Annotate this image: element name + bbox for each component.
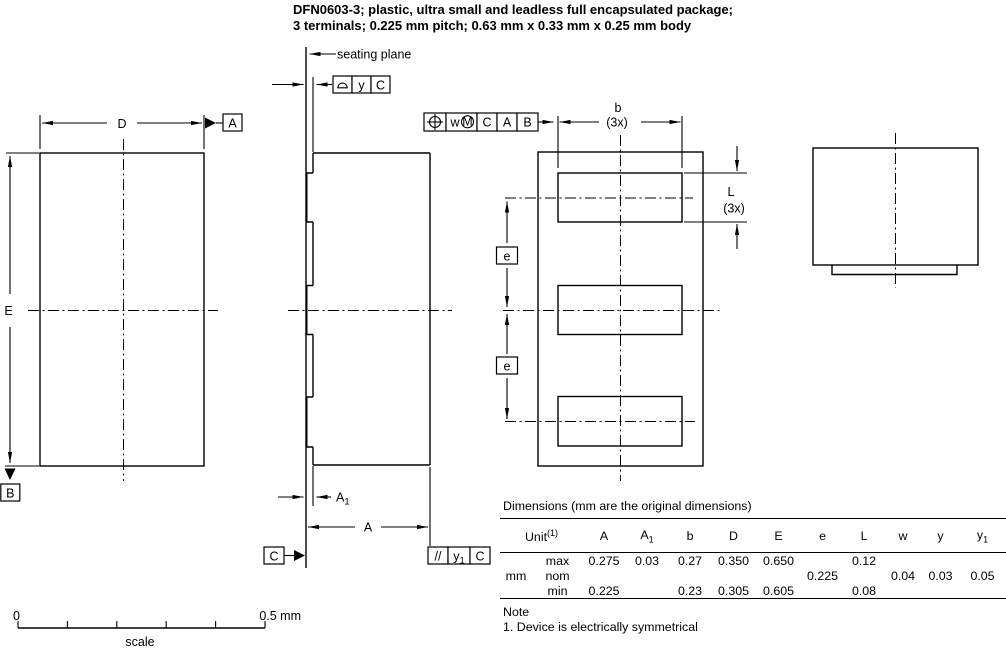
dim-label-d: D <box>117 117 126 131</box>
position-frame: w M C A B <box>424 113 554 131</box>
row-label: nom <box>532 568 583 583</box>
dim-label-l: L <box>728 185 735 199</box>
col-header-w: w <box>884 519 922 553</box>
dim-label-e-pitch-1: e <box>504 250 511 264</box>
position-datum-2: A <box>503 116 512 130</box>
col-header-L: L <box>844 519 884 553</box>
body-outline <box>813 148 978 265</box>
scale-zero-label: 0 <box>13 609 20 623</box>
datum-c-triangle <box>294 550 305 561</box>
position-datum-1: C <box>482 116 491 130</box>
dimensions-table: Unit(1) A A1 b D E e L w y y1 mm max 0.2… <box>500 518 1006 599</box>
terminal-bump-top <box>307 173 313 222</box>
row-label: min <box>532 583 583 599</box>
datum-a-triangle <box>205 118 216 129</box>
datum-b-label: B <box>6 487 14 501</box>
note-item-1: 1. Device is electrically symmetrical <box>503 620 1006 635</box>
flatness-frame: y C <box>333 76 390 93</box>
note-section: Note 1. Device is electrically symmetric… <box>503 605 1006 634</box>
dim-l-count: (3x) <box>723 202 745 216</box>
seating-plane-label: seating plane <box>337 48 411 62</box>
col-header-unit: Unit(1) <box>500 519 583 553</box>
dimensions-table-section: Dimensions (mm are the original dimensio… <box>500 499 1006 634</box>
col-header-A: A <box>583 519 625 553</box>
dim-label-b: b <box>615 101 622 115</box>
dim-label-e-pitch-2: e <box>504 360 511 374</box>
datum-c-label: C <box>269 550 278 564</box>
flatness-tol-label: y <box>358 79 365 93</box>
col-header-b: b <box>669 519 711 553</box>
dim-b-count: (3x) <box>606 116 628 130</box>
top-view: D A E B <box>1 114 242 501</box>
position-tol-label: w <box>449 116 460 130</box>
col-header-A1: A1 <box>625 519 669 553</box>
end-view <box>813 133 978 288</box>
mmc-modifier-icon: M <box>462 115 474 129</box>
row-label: max <box>532 553 583 569</box>
table-row-nom: nom 0.225 0.04 0.03 0.05 <box>500 568 1006 583</box>
parallelism-datum-label: C <box>475 550 484 564</box>
col-header-e: e <box>801 519 844 553</box>
flatness-datum-label: C <box>376 79 385 93</box>
dim-label-a: A <box>364 521 373 535</box>
dim-label-a1: A1 <box>336 491 350 508</box>
scale-max-label: 0.5 mm <box>259 609 301 623</box>
table-header-row: Unit(1) A A1 b D E e L w y y1 <box>500 519 1006 553</box>
position-datum-3: B <box>523 116 531 130</box>
note-title: Note <box>503 605 1006 620</box>
col-header-y: y <box>922 519 959 553</box>
scale-caption: scale <box>125 635 154 648</box>
datum-a-label: A <box>228 117 237 131</box>
parallelism-symbol: // <box>435 550 442 564</box>
terminal-profile <box>832 265 957 275</box>
table-row-min: min 0.225 0.23 0.305 0.605 0.08 <box>500 583 1006 599</box>
terminal-bump-bottom <box>307 397 313 447</box>
col-header-E: E <box>756 519 801 553</box>
svg-text:M: M <box>462 115 472 129</box>
unit-cell: mm <box>500 553 532 599</box>
bottom-view: b (3x) w M C A B <box>424 101 747 481</box>
dim-label-e: E <box>4 304 12 318</box>
datum-b-triangle <box>5 469 16 481</box>
table-title: Dimensions (mm are the original dimensio… <box>503 499 1006 513</box>
body-outline <box>40 153 204 466</box>
parallelism-frame: // y1 C <box>428 547 490 567</box>
col-header-y1: y1 <box>959 519 1006 553</box>
col-header-D: D <box>711 519 756 553</box>
scale-bar: 0 0.5 mm scale <box>13 609 301 648</box>
table-row-max: mm max 0.275 0.03 0.27 0.350 0.650 0.12 <box>500 553 1006 569</box>
